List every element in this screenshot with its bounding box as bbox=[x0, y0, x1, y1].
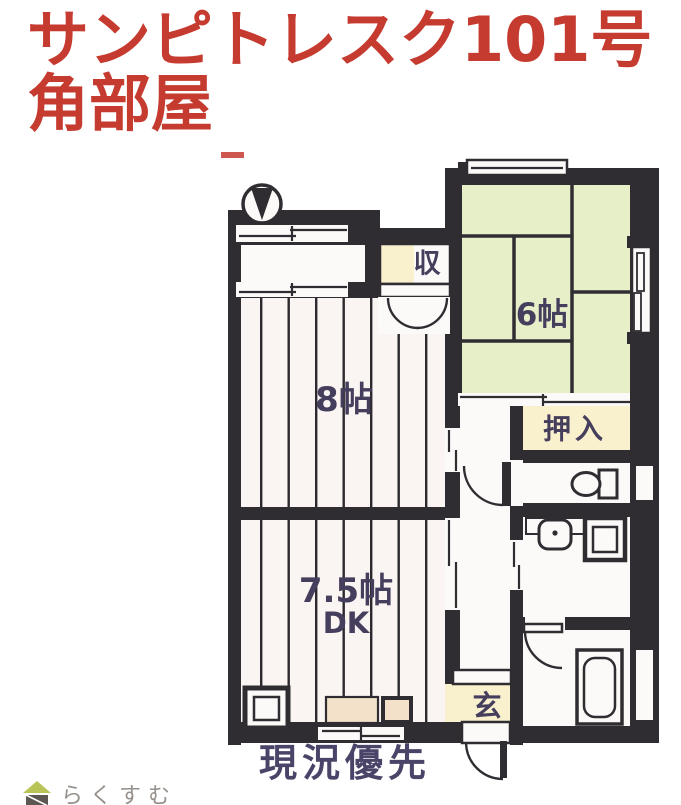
logo-text: らくすむ bbox=[61, 778, 177, 805]
room-label-genkan: 玄 bbox=[472, 689, 501, 723]
kitchen-sink-unit bbox=[383, 698, 411, 722]
room-label-storage: 収 bbox=[414, 249, 442, 280]
room-label-dk-type: DK bbox=[323, 606, 371, 640]
room-6jo-tatami-floor bbox=[462, 185, 630, 393]
kitchen-counter bbox=[326, 697, 378, 723]
sliding-door-dk bbox=[445, 518, 460, 610]
sliding-door-8jo bbox=[445, 428, 460, 472]
bathtub-icon bbox=[577, 650, 622, 724]
bath-door-leaf bbox=[524, 624, 562, 632]
balcony-floor bbox=[241, 245, 365, 282]
house-icon bbox=[22, 781, 52, 805]
room-label-8jo: 8帖 bbox=[315, 380, 373, 420]
rakusumu-logo: らくすむ bbox=[22, 778, 177, 805]
window-icon-toilet bbox=[636, 466, 653, 500]
entry-door-swing-icon bbox=[466, 743, 503, 779]
toilet-icon bbox=[572, 470, 617, 498]
floorplan-page: サンピトレスク101号角部屋 bbox=[0, 0, 681, 805]
closet-door-track bbox=[380, 284, 450, 297]
room-label-dk-size: 7.5帖 bbox=[299, 571, 393, 611]
caveat-note: 現況優先 bbox=[259, 741, 431, 785]
sliding-door-washroom bbox=[510, 540, 523, 590]
entry-door-leaf bbox=[500, 741, 507, 778]
washing-machine-icon bbox=[585, 518, 625, 560]
toilet-door-leaf bbox=[502, 462, 511, 506]
entry-threshold bbox=[462, 722, 510, 743]
room-label-oshiire: 押入 bbox=[543, 413, 607, 446]
genkan-step bbox=[453, 670, 511, 684]
red-scan-mark bbox=[221, 152, 244, 158]
window-icon-bath bbox=[636, 650, 653, 720]
hallway-floor bbox=[460, 406, 510, 672]
floorplan-drawing: 8帖 6帖 7.5帖 DK 押入 収 玄 現況優先 bbox=[0, 0, 681, 805]
compass-icon bbox=[243, 185, 281, 223]
room-label-6jo: 6帖 bbox=[516, 297, 569, 333]
stove-icon bbox=[245, 688, 288, 728]
